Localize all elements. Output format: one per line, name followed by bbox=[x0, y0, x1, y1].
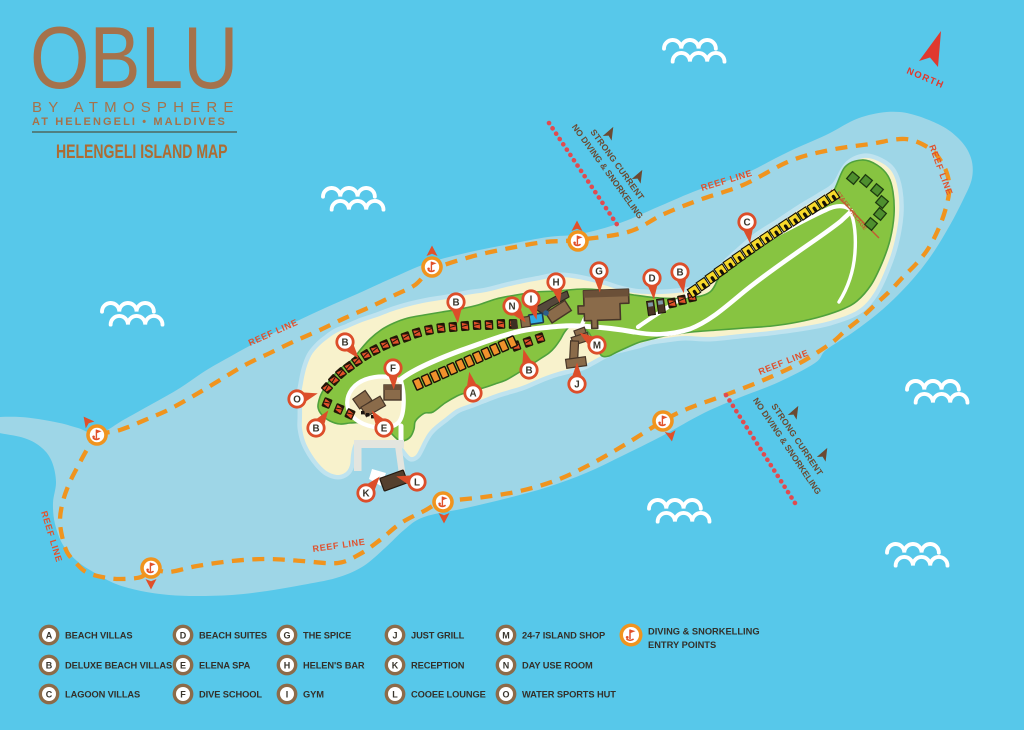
svg-text:LAGOON VILLAS: LAGOON VILLAS bbox=[65, 690, 140, 700]
svg-text:I: I bbox=[530, 295, 533, 306]
svg-text:DELUXE BEACH VILLAS: DELUXE BEACH VILLAS bbox=[65, 661, 172, 671]
svg-text:B: B bbox=[341, 338, 348, 349]
svg-text:DIVE SCHOOL: DIVE SCHOOL bbox=[199, 690, 262, 700]
svg-text:C: C bbox=[46, 689, 53, 699]
svg-text:I: I bbox=[286, 689, 289, 699]
svg-text:B: B bbox=[46, 660, 53, 670]
svg-text:AT HELENGELI • MALDIVES: AT HELENGELI • MALDIVES bbox=[32, 116, 227, 128]
svg-text:H: H bbox=[552, 278, 559, 289]
svg-text:F: F bbox=[180, 689, 186, 699]
svg-text:L: L bbox=[392, 689, 398, 699]
svg-text:G: G bbox=[283, 630, 290, 640]
svg-text:C: C bbox=[743, 218, 750, 229]
svg-text:DAY USE ROOM: DAY USE ROOM bbox=[522, 661, 593, 671]
svg-text:BEACH VILLAS: BEACH VILLAS bbox=[65, 631, 133, 641]
svg-text:A: A bbox=[469, 389, 476, 400]
svg-text:OBLU: OBLU bbox=[30, 9, 238, 107]
svg-text:O: O bbox=[293, 395, 301, 406]
svg-text:H: H bbox=[284, 660, 291, 670]
svg-text:F: F bbox=[390, 364, 396, 375]
svg-text:M: M bbox=[502, 630, 510, 640]
svg-text:J: J bbox=[392, 630, 397, 640]
svg-text:BY ATMOSPHERE: BY ATMOSPHERE bbox=[32, 99, 240, 116]
svg-text:K: K bbox=[362, 489, 369, 500]
svg-text:B: B bbox=[525, 366, 532, 377]
svg-text:JUST GRILL: JUST GRILL bbox=[411, 631, 465, 641]
svg-text:WATER SPORTS HUT: WATER SPORTS HUT bbox=[522, 690, 616, 700]
svg-text:N: N bbox=[503, 660, 510, 670]
svg-text:ELENA SPA: ELENA SPA bbox=[199, 661, 251, 671]
svg-text:ENTRY POINTS: ENTRY POINTS bbox=[648, 640, 716, 650]
svg-text:RECEPTION: RECEPTION bbox=[411, 661, 465, 671]
svg-text:24-7 ISLAND SHOP: 24-7 ISLAND SHOP bbox=[522, 631, 605, 641]
svg-text:D: D bbox=[648, 274, 655, 285]
svg-text:HELEN'S BAR: HELEN'S BAR bbox=[303, 661, 365, 671]
svg-text:N: N bbox=[508, 302, 515, 313]
svg-text:THE SPICE: THE SPICE bbox=[303, 631, 351, 641]
svg-text:L: L bbox=[414, 478, 420, 489]
svg-text:B: B bbox=[676, 268, 683, 279]
svg-text:M: M bbox=[593, 341, 601, 352]
svg-text:GYM: GYM bbox=[303, 690, 324, 700]
svg-text:BEACH SUITES: BEACH SUITES bbox=[199, 631, 267, 641]
svg-text:E: E bbox=[180, 660, 186, 670]
svg-text:O: O bbox=[502, 689, 509, 699]
svg-text:DIVING & SNORKELLING: DIVING & SNORKELLING bbox=[648, 627, 760, 637]
svg-text:B: B bbox=[312, 424, 319, 435]
svg-text:E: E bbox=[381, 424, 388, 435]
svg-text:B: B bbox=[452, 298, 459, 309]
svg-text:G: G bbox=[595, 267, 603, 278]
svg-text:A: A bbox=[46, 630, 53, 640]
svg-text:HELENGELI ISLAND MAP: HELENGELI ISLAND MAP bbox=[56, 141, 228, 163]
svg-text:D: D bbox=[180, 630, 187, 640]
svg-text:J: J bbox=[574, 380, 579, 391]
svg-text:COOEE LOUNGE: COOEE LOUNGE bbox=[411, 690, 486, 700]
svg-text:K: K bbox=[392, 660, 399, 670]
